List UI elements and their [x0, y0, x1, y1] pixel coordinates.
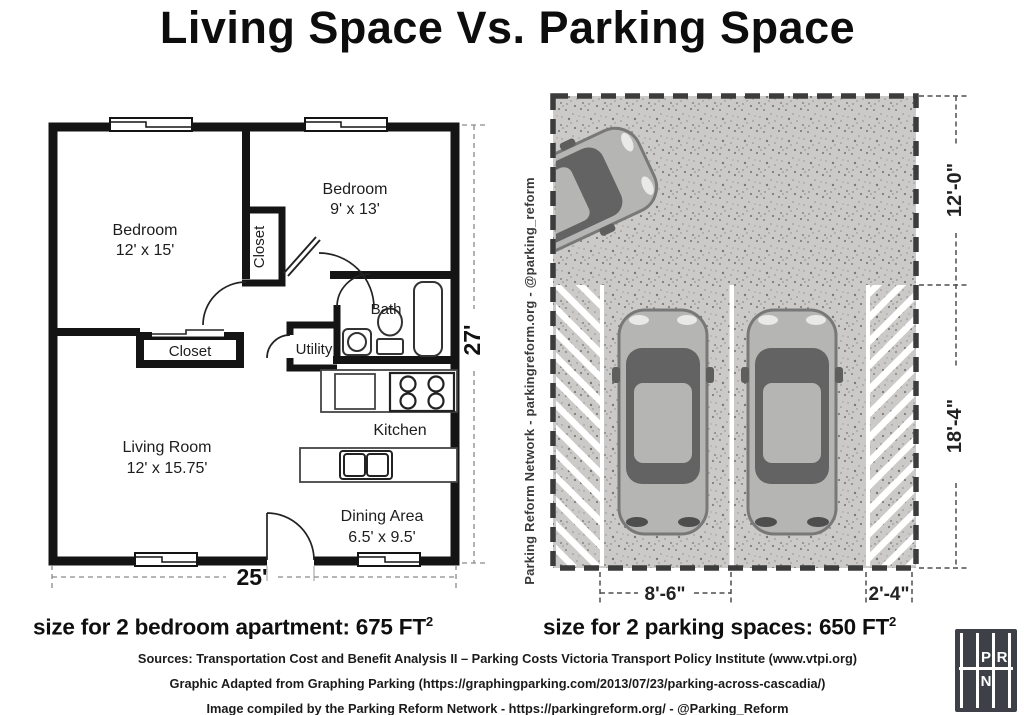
footer-credit-line: Graphic Adapted from Graphing Parking (h…: [10, 671, 985, 696]
parking-size-text: size for 2 parking spaces: 650 FT: [543, 615, 889, 640]
aisle-depth-label: 12'-0": [944, 163, 966, 217]
living-room-label: Living Room: [123, 439, 212, 456]
bathtub-icon: [414, 282, 442, 356]
hall-closet-label: Closet: [251, 225, 268, 268]
kitchen-sink-icon: [340, 451, 392, 479]
car-parked-right-icon: [741, 310, 843, 534]
window-top-left-icon: [110, 118, 192, 131]
logo-letter-r: R: [995, 650, 1009, 665]
car-parked-left-icon: [612, 310, 714, 534]
prn-logo: P R N: [955, 629, 1017, 712]
bedroom-right-label: Bedroom: [323, 181, 388, 198]
stall-depth-label: 18'-4": [944, 399, 966, 453]
hatch-strip-right: [870, 285, 915, 566]
width-dimension-label: 25': [236, 564, 267, 590]
parking-diagram: 12'-0" 18'-4" 8'-6" 2'-4" Parking Reform…: [520, 85, 1024, 615]
window-top-right-icon: [305, 118, 387, 131]
kitchen-label: Kitchen: [373, 422, 426, 439]
apartment-size-text: size for 2 bedroom apartment: 675 FT: [33, 615, 426, 640]
logo-line-icon: [959, 667, 1013, 670]
bedroom-right-dims: 9' x 13': [330, 201, 380, 218]
infographic-canvas: Living Space Vs. Parking Space: [0, 0, 1024, 715]
parking-size-sup: 2: [889, 614, 896, 629]
logo-line-icon: [1008, 633, 1011, 708]
living-room-dims: 12' x 15.75': [127, 460, 208, 477]
logo-line-icon: [960, 633, 963, 708]
logo-letter-p: P: [979, 650, 993, 665]
utility-label: Utility: [296, 341, 333, 358]
stall-width-label: 8'-6": [645, 584, 686, 605]
dining-area-dims: 6.5' x 9.5': [348, 529, 415, 546]
logo-letter-n: N: [979, 674, 993, 689]
stove-icon: [390, 373, 454, 411]
bath-label: Bath: [371, 301, 402, 318]
lower-closet-label: Closet: [169, 343, 212, 360]
buffer-width-label: 2'-4": [869, 584, 910, 605]
footer-compiled-line: Image compiled by the Parking Reform Net…: [10, 696, 985, 715]
lower-closet-door: [152, 326, 224, 337]
window-bottom-left-icon: [135, 553, 197, 566]
page-title: Living Space Vs. Parking Space: [15, 2, 1000, 54]
window-bottom-right-icon: [358, 553, 420, 566]
bedroom-left-dims: 12' x 15': [116, 242, 175, 259]
height-dimension-label: 27': [459, 324, 485, 355]
apartment-size-caption: size for 2 bedroom apartment: 675 FT2: [33, 614, 433, 641]
dining-area-label: Dining Area: [341, 508, 424, 525]
watermark-text: Parking Reform Network - parkingreform.o…: [522, 177, 537, 585]
hatch-strip-left: [556, 285, 600, 566]
logo-line-icon: [992, 633, 995, 708]
logo-line-icon: [976, 633, 979, 708]
footer: Sources: Transportation Cost and Benefit…: [10, 646, 985, 715]
apartment-size-sup: 2: [426, 614, 433, 629]
bedroom-left-label: Bedroom: [113, 222, 178, 239]
footer-sources-line: Sources: Transportation Cost and Benefit…: [10, 646, 985, 671]
floor-plan-diagram: Bedroom 12' x 15' Bedroom 9' x 13' Close…: [40, 113, 510, 603]
parking-size-caption: size for 2 parking spaces: 650 FT2: [543, 614, 896, 641]
